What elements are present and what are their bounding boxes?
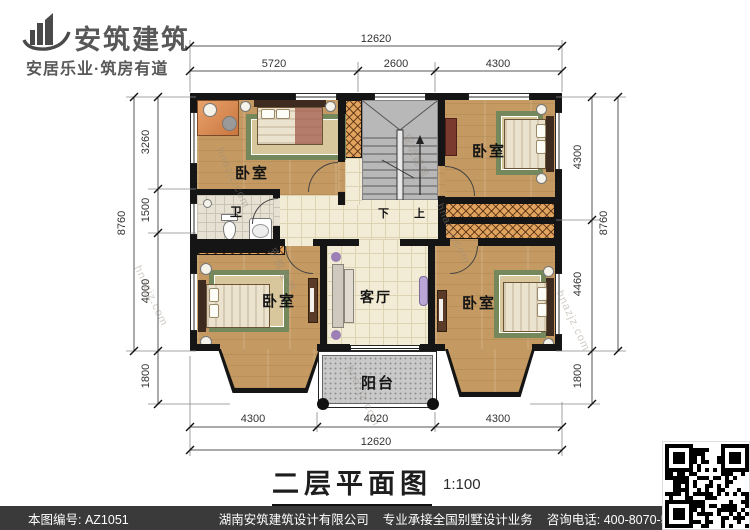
footer-bar: 本图编号: AZ1051 湖南安筑建筑设计有限公司 专业承接全国别墅设计业务 咨… bbox=[0, 506, 750, 530]
dim-bottom-seg2: 4020 bbox=[341, 413, 411, 425]
dim-left-total: 8760 bbox=[116, 193, 128, 253]
label-stair-up: 上 bbox=[414, 205, 425, 221]
desk-lamp bbox=[203, 103, 217, 117]
window-left-bath bbox=[190, 203, 197, 235]
balcony-sliding-door bbox=[350, 345, 420, 351]
cabinet-topright bbox=[445, 118, 457, 156]
label-bedroom-topright: 卧室 bbox=[472, 140, 506, 161]
label-living: 客厅 bbox=[360, 287, 392, 307]
wardrobe-right-1 bbox=[445, 203, 555, 218]
pillow bbox=[209, 288, 219, 302]
door-gap bbox=[338, 162, 345, 192]
wall-bottom-d bbox=[532, 344, 562, 351]
dim-right-total: 8760 bbox=[598, 193, 610, 253]
nightstand bbox=[543, 266, 554, 277]
pillow bbox=[261, 109, 275, 119]
sofa-back bbox=[332, 264, 344, 328]
bed-bottomright-headboard bbox=[546, 278, 554, 336]
sofa-seat bbox=[344, 269, 354, 323]
window-top-stair bbox=[374, 93, 426, 100]
building-logo-icon bbox=[20, 10, 72, 54]
bed-topright-headboard bbox=[546, 116, 554, 172]
wall-bottom-a bbox=[190, 344, 220, 351]
window-right-1 bbox=[555, 112, 562, 170]
bay-window-left bbox=[221, 349, 319, 388]
wardrobe-right-2 bbox=[445, 223, 555, 239]
window-top-2 bbox=[468, 93, 530, 100]
label-bedroom-bottomright: 卧室 bbox=[462, 292, 496, 313]
floorplan-sheet: 安筑建筑 安居乐业·筑房有道 bbox=[0, 0, 750, 530]
company-phone: 咨询电话: 400-8070-511 bbox=[547, 509, 681, 528]
window-top-1 bbox=[295, 93, 337, 100]
bed-bottomleft-headboard bbox=[198, 280, 206, 332]
bed-topleft-blanket bbox=[295, 108, 322, 144]
dim-top-seg2: 2600 bbox=[361, 58, 431, 70]
nightstand bbox=[536, 104, 547, 115]
label-bedroom-bottomleft: 卧室 bbox=[262, 290, 296, 311]
nightstand bbox=[536, 173, 547, 184]
dim-right-seg2: 4460 bbox=[572, 254, 584, 314]
brand-tagline: 安居乐业·筑房有道 bbox=[26, 55, 168, 79]
wall-br-top-b bbox=[478, 239, 562, 246]
company-logo: 安筑建筑 安居乐业·筑房有道 bbox=[0, 0, 200, 85]
company-name: 湖南安筑建筑设计有限公司 bbox=[219, 509, 369, 528]
balcony-column bbox=[427, 398, 439, 410]
window-left-2 bbox=[190, 273, 197, 331]
nightstand bbox=[240, 101, 251, 112]
dim-left-seg1: 3260 bbox=[140, 112, 152, 172]
pillow bbox=[209, 304, 219, 318]
qr-code bbox=[662, 441, 750, 530]
wall-living-top-b bbox=[400, 239, 428, 246]
wall-wardrobe-mid bbox=[445, 218, 555, 223]
dim-right-seg1: 4300 bbox=[572, 127, 584, 187]
wall-living-top-a bbox=[327, 239, 359, 246]
wall-bl-top-a bbox=[190, 239, 285, 246]
wall-living-right bbox=[428, 239, 435, 351]
dim-right-seg3: 1800 bbox=[572, 346, 584, 406]
drawing-title: 二层平面图 bbox=[272, 462, 432, 506]
dim-bottom-seg1: 4300 bbox=[218, 413, 288, 425]
brand-name: 安筑建筑 bbox=[74, 18, 190, 57]
dim-left-seg4: 1800 bbox=[140, 346, 152, 406]
tv-bottomright bbox=[439, 299, 443, 321]
dim-top-seg3: 4300 bbox=[463, 58, 533, 70]
plant-pot bbox=[331, 330, 341, 340]
dim-top-total: 12620 bbox=[341, 33, 411, 45]
label-stair-down: 下 bbox=[378, 205, 389, 221]
media-unit-living bbox=[419, 276, 428, 306]
window-left-1 bbox=[190, 112, 197, 164]
drawing-scale: 1:100 bbox=[443, 476, 481, 493]
sink-basin bbox=[252, 224, 269, 238]
door-gap bbox=[438, 166, 445, 196]
pillow bbox=[537, 287, 547, 301]
plant-pot bbox=[331, 252, 341, 262]
pillow bbox=[536, 140, 546, 154]
closet-stair-side bbox=[345, 100, 362, 158]
desk-stool bbox=[222, 116, 237, 131]
bed-topleft-headboard bbox=[254, 99, 326, 107]
staircase bbox=[362, 100, 438, 200]
pillow bbox=[537, 303, 547, 317]
company-service: 专业承接全国别墅设计业务 bbox=[383, 509, 533, 528]
dim-bottom-total: 12620 bbox=[341, 436, 411, 448]
dim-left-seg2: 1500 bbox=[140, 180, 152, 240]
pillow bbox=[276, 109, 290, 119]
drawing-number: 本图编号: AZ1051 bbox=[28, 509, 129, 528]
wall-wardrobe-top bbox=[438, 197, 562, 203]
nightstand bbox=[325, 101, 336, 112]
dim-left-seg3: 4000 bbox=[140, 261, 152, 321]
dim-top-seg1: 5720 bbox=[239, 58, 309, 70]
floor-drain bbox=[203, 199, 212, 208]
wall-living-left bbox=[320, 239, 327, 351]
bay-window-right bbox=[448, 349, 532, 392]
dim-bottom-seg3: 4300 bbox=[463, 413, 533, 425]
stair-lobby-floor bbox=[345, 158, 362, 205]
nightstand bbox=[200, 263, 212, 275]
tv-bottomleft bbox=[310, 288, 314, 312]
pillow bbox=[536, 124, 546, 138]
balcony-column bbox=[317, 398, 329, 410]
